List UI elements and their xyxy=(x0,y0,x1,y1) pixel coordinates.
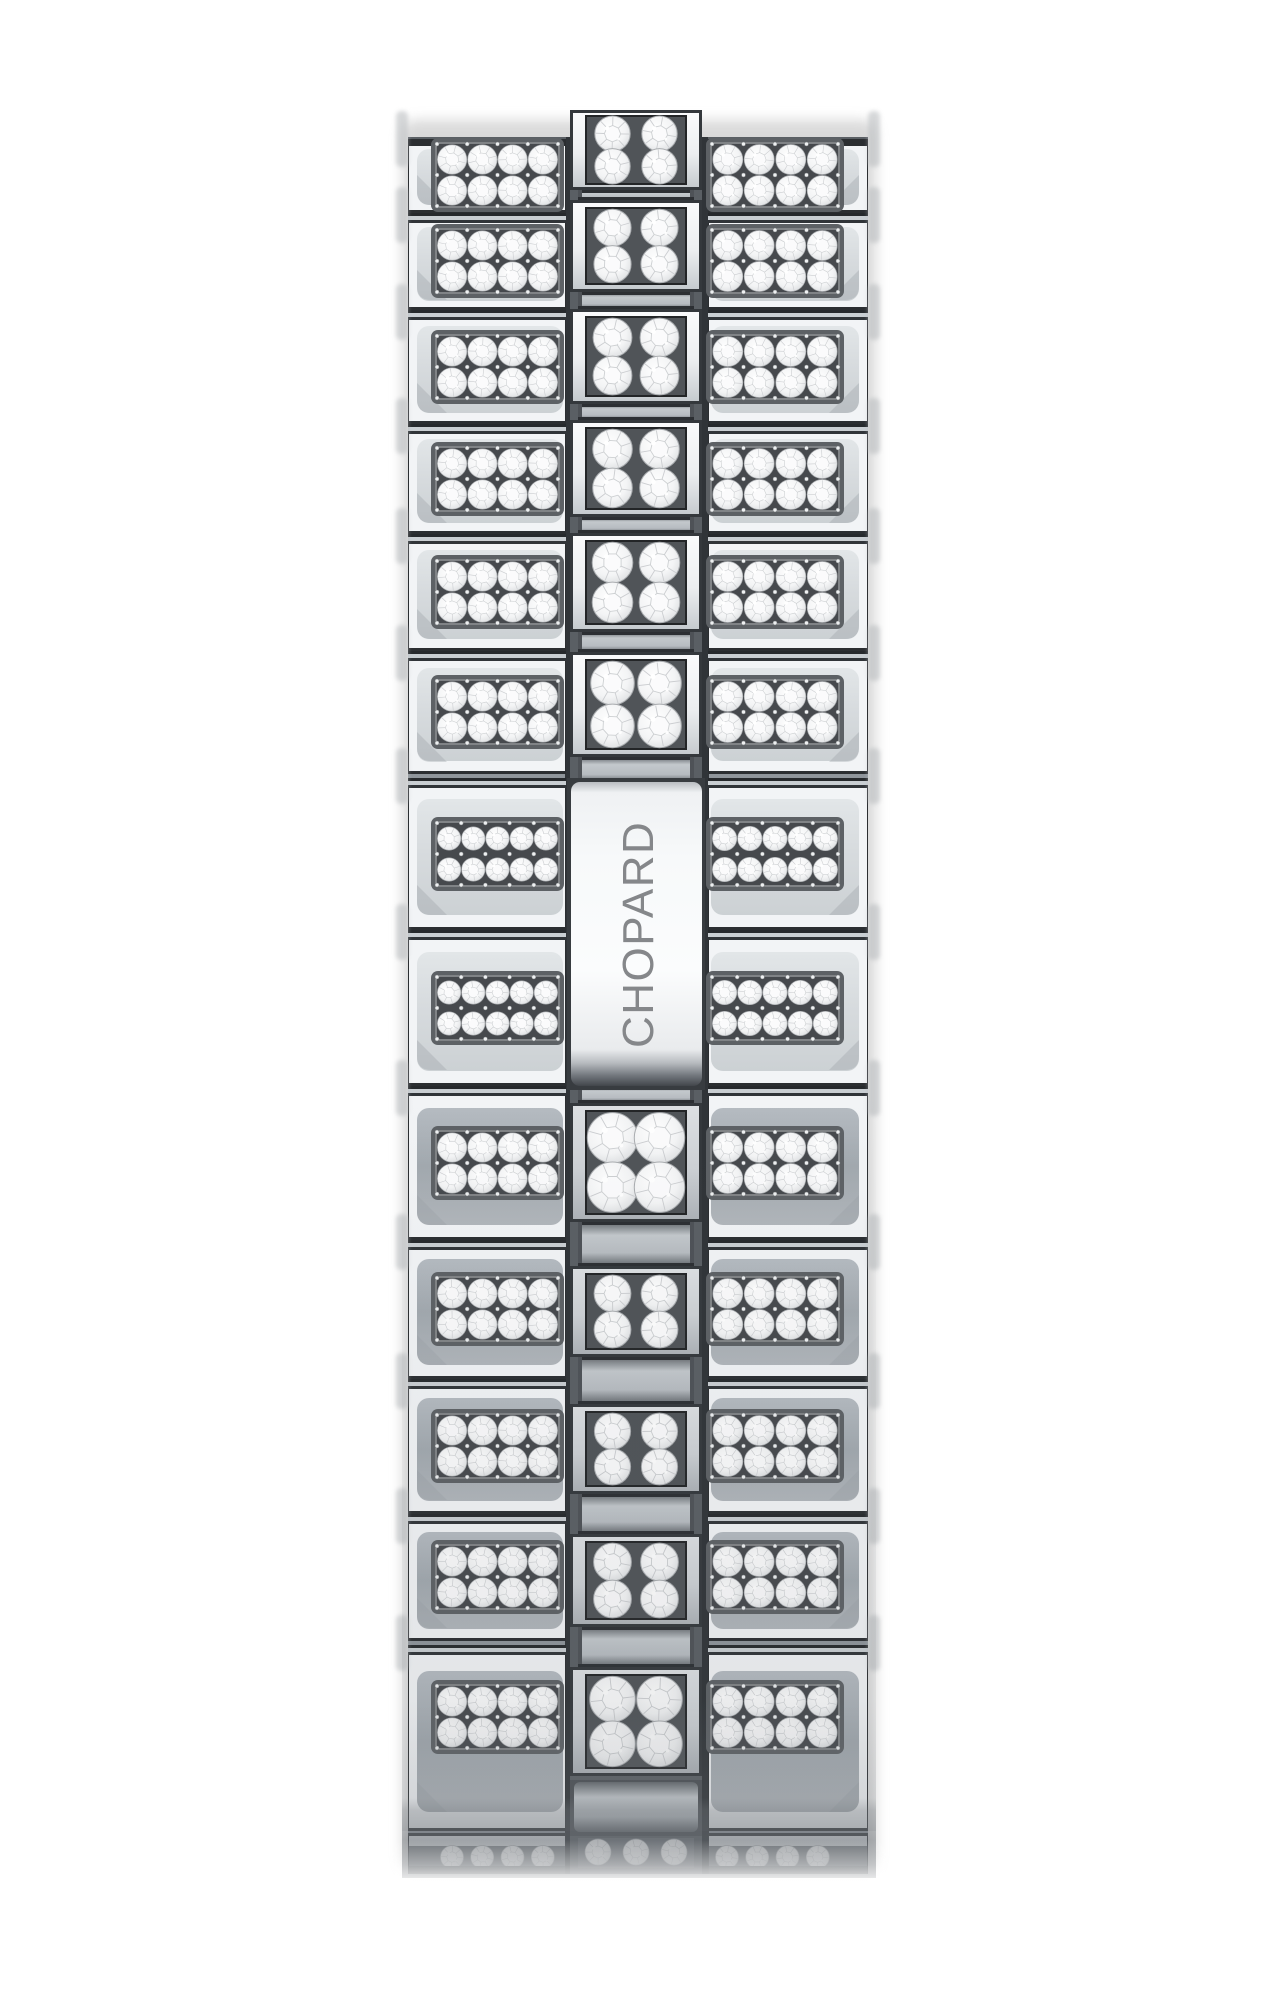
svg-text:CHOPARD: CHOPARD xyxy=(614,821,663,1048)
